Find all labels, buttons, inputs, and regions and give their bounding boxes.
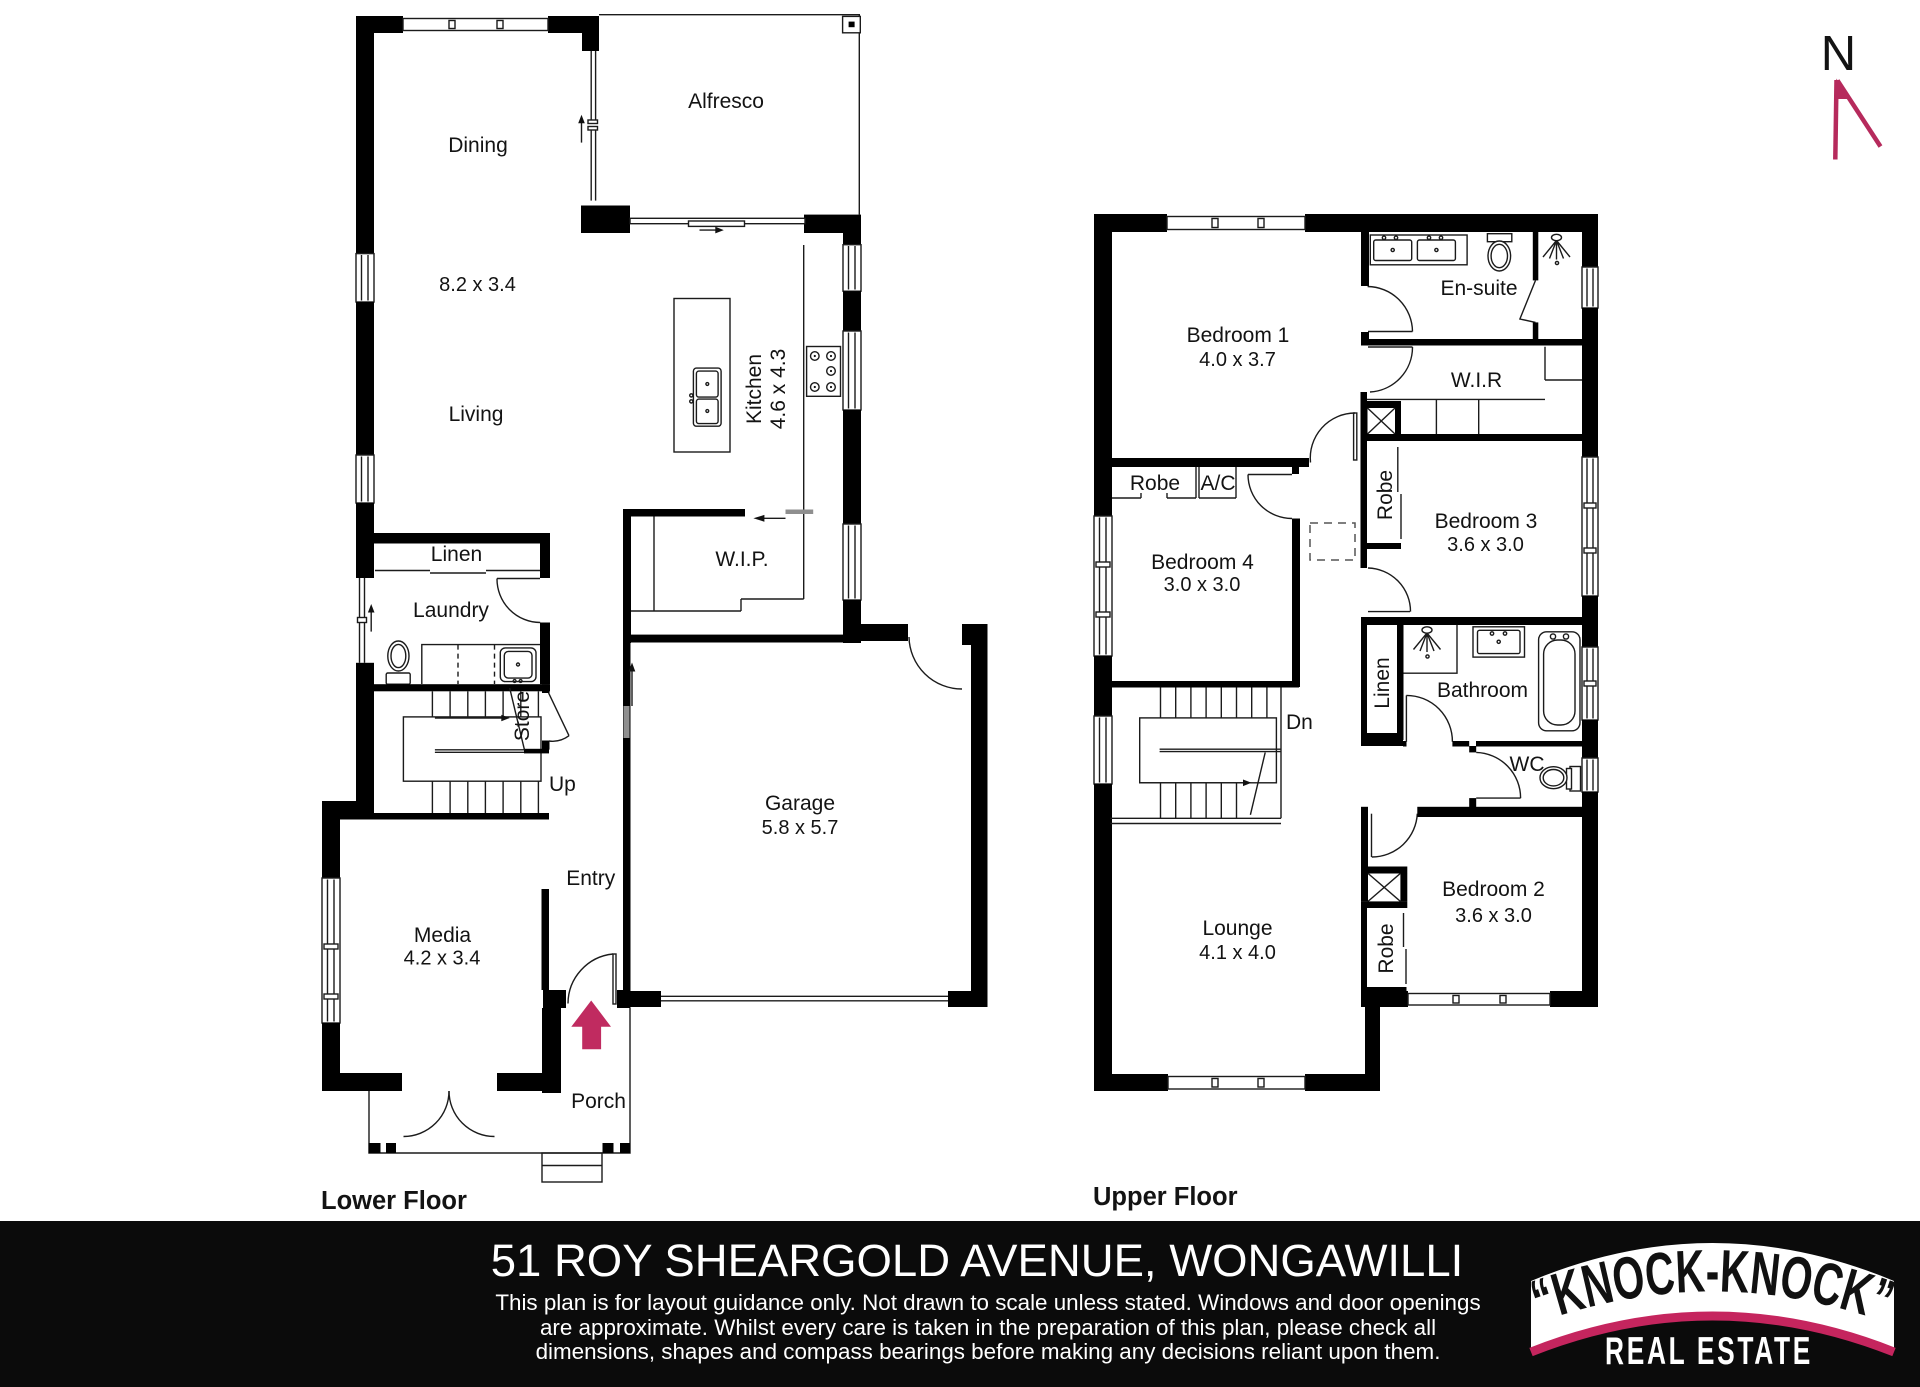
svg-text:N: N — [1821, 27, 1856, 81]
svg-text:W.I.R: W.I.R — [1451, 369, 1502, 392]
svg-text:Lower Floor: Lower Floor — [321, 1187, 467, 1215]
svg-text:Living: Living — [449, 403, 504, 426]
svg-text:Bedroom 2: Bedroom 2 — [1442, 878, 1545, 901]
svg-text:Porch: Porch — [571, 1090, 626, 1113]
svg-text:3.6 x 3.0: 3.6 x 3.0 — [1447, 534, 1524, 556]
svg-text:51 ROY SHEARGOLD AVENUE, WONGA: 51 ROY SHEARGOLD AVENUE, WONGAWILLI — [491, 1235, 1464, 1286]
svg-text:Linen: Linen — [1371, 657, 1394, 708]
svg-text:8.2 x 3.4: 8.2 x 3.4 — [439, 274, 516, 296]
svg-text:3.6 x 3.0: 3.6 x 3.0 — [1455, 905, 1532, 927]
svg-text:dimensions, shapes and compass: dimensions, shapes and compass bearings … — [536, 1339, 1441, 1364]
svg-text:5.8 x 5.7: 5.8 x 5.7 — [762, 817, 839, 839]
svg-text:WC: WC — [1510, 753, 1545, 776]
svg-text:4.2 x 3.4: 4.2 x 3.4 — [404, 948, 481, 970]
svg-text:Kitchen4.6 x 4.3: Kitchen4.6 x 4.3 — [743, 349, 790, 430]
svg-text:Lounge: Lounge — [1202, 917, 1272, 940]
svg-text:Up: Up — [549, 773, 576, 796]
svg-text:4.1 x 4.0: 4.1 x 4.0 — [1199, 942, 1276, 964]
svg-text:Store: Store — [511, 691, 534, 741]
svg-text:Robe: Robe — [1374, 470, 1397, 520]
svg-text:Laundry: Laundry — [413, 599, 489, 622]
svg-text:Alfresco: Alfresco — [688, 90, 764, 113]
svg-text:Bedroom 1: Bedroom 1 — [1187, 324, 1290, 347]
svg-text:REAL ESTATE: REAL ESTATE — [1605, 1330, 1813, 1373]
svg-text:Dining: Dining — [448, 134, 508, 157]
svg-text:En-suite: En-suite — [1440, 277, 1517, 300]
svg-text:Robe: Robe — [1375, 923, 1398, 973]
svg-text:Linen: Linen — [431, 543, 482, 566]
svg-text:A/C: A/C — [1200, 472, 1235, 495]
svg-text:Bathroom: Bathroom — [1437, 679, 1528, 702]
svg-text:Media: Media — [414, 924, 472, 947]
svg-text:Garage: Garage — [765, 792, 835, 815]
svg-text:This plan is for layout guidan: This plan is for layout guidance only. N… — [495, 1290, 1480, 1315]
svg-text:Robe: Robe — [1130, 472, 1180, 495]
svg-text:are approximate. Whilst every: are approximate. Whilst every care is ta… — [540, 1315, 1436, 1340]
svg-text:Upper Floor: Upper Floor — [1093, 1183, 1238, 1211]
svg-text:Bedroom 3: Bedroom 3 — [1435, 510, 1538, 533]
svg-text:Dn: Dn — [1286, 711, 1313, 734]
svg-text:Entry: Entry — [566, 867, 616, 890]
svg-text:3.0 x 3.0: 3.0 x 3.0 — [1164, 574, 1241, 596]
svg-text:Bedroom 4: Bedroom 4 — [1151, 551, 1254, 574]
svg-text:W.I.P.: W.I.P. — [715, 548, 768, 571]
svg-text:4.0 x 3.7: 4.0 x 3.7 — [1199, 349, 1276, 371]
